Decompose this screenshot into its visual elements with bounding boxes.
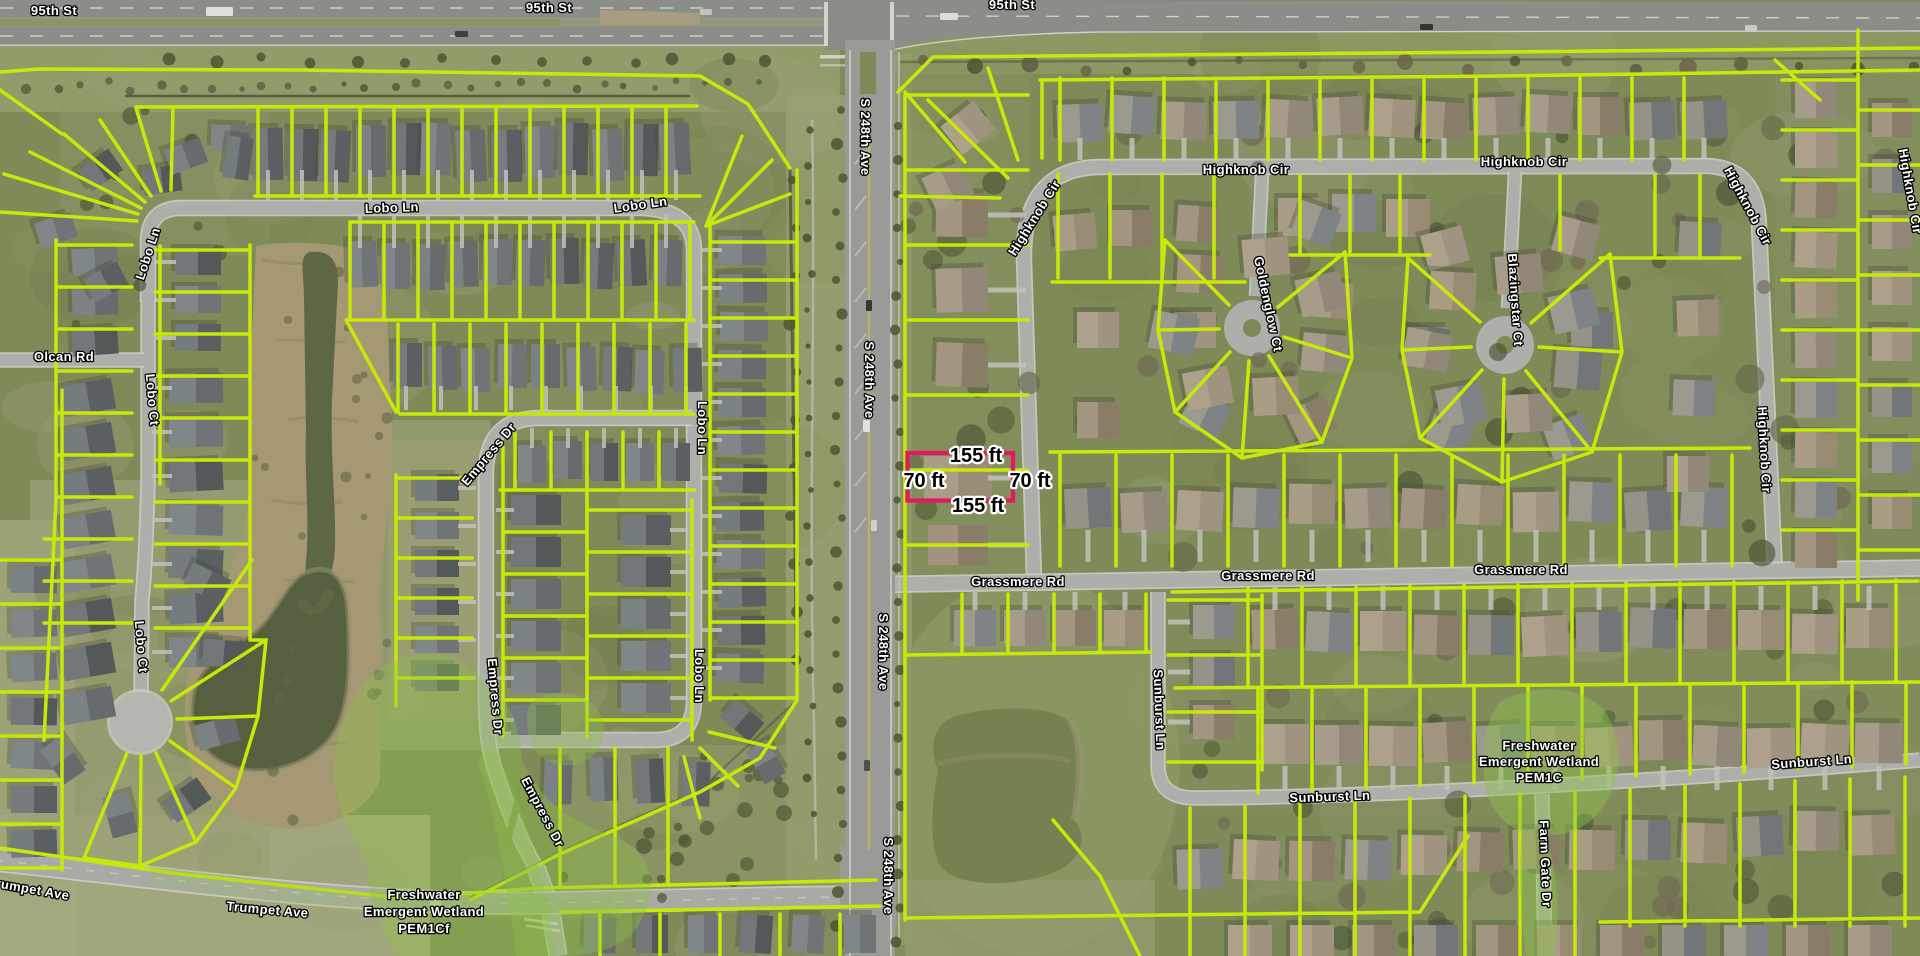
svg-text:Highknob Cir: Highknob Cir [1481,154,1567,169]
svg-text:95th St: 95th St [989,0,1035,12]
svg-text:PEM1Cf: PEM1Cf [398,921,450,936]
svg-text:Grassmere Rd: Grassmere Rd [1474,562,1568,577]
svg-text:95th St: 95th St [526,0,572,15]
svg-text:70 ft: 70 ft [1009,470,1050,492]
svg-text:S 248th Ave: S 248th Ave [862,341,877,418]
svg-text:Emergent Wetland: Emergent Wetland [364,904,484,919]
svg-text:Sunburst Ln: Sunburst Ln [1289,788,1370,806]
svg-text:S 248th Ave: S 248th Ave [881,837,896,914]
svg-text:Freshwater: Freshwater [1502,738,1575,753]
svg-text:Grassmere Rd: Grassmere Rd [971,574,1065,589]
svg-text:Highknob Cir: Highknob Cir [1203,162,1289,177]
svg-text:155 ft: 155 ft [952,495,1005,517]
svg-text:95th St: 95th St [31,3,77,18]
svg-text:PEM1C: PEM1C [1516,770,1563,785]
svg-text:Sunburst Ln: Sunburst Ln [1151,669,1169,750]
svg-text:155 ft: 155 ft [950,445,1003,467]
svg-text:Farm Gate Dr: Farm Gate Dr [1536,820,1554,908]
svg-text:S 248th Ave: S 248th Ave [876,613,891,690]
svg-text:S 248th Ave: S 248th Ave [858,98,873,175]
svg-text:70 ft: 70 ft [903,470,944,492]
svg-text:Grassmere Rd: Grassmere Rd [1221,568,1315,583]
svg-text:Olcan Rd: Olcan Rd [34,349,94,364]
svg-text:Lobo Ln: Lobo Ln [695,401,710,455]
svg-text:Lobo Ln: Lobo Ln [365,199,420,216]
svg-text:Lobo Ln: Lobo Ln [692,649,707,703]
svg-text:Freshwater: Freshwater [387,887,460,902]
svg-text:Emergent Wetland: Emergent Wetland [1479,754,1599,769]
